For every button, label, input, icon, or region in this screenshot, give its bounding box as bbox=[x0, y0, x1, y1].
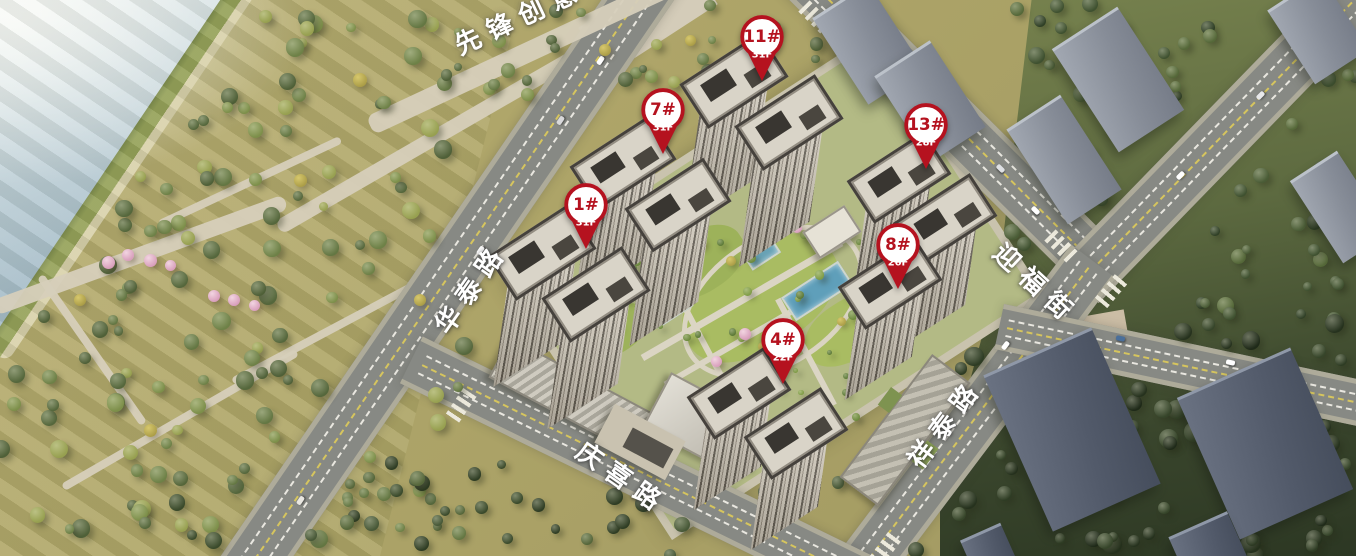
tree bbox=[1005, 462, 1018, 475]
tree bbox=[1342, 69, 1354, 81]
tree bbox=[1315, 515, 1326, 526]
tree bbox=[454, 63, 462, 71]
tree bbox=[674, 517, 690, 533]
tree bbox=[1131, 382, 1146, 397]
tree bbox=[421, 119, 439, 137]
tree bbox=[434, 140, 452, 158]
yellow-tree bbox=[353, 73, 367, 87]
tree bbox=[188, 119, 199, 130]
tree bbox=[293, 191, 303, 201]
tree bbox=[1203, 29, 1217, 43]
tree bbox=[79, 352, 91, 364]
tree bbox=[377, 487, 391, 501]
tree bbox=[152, 381, 165, 394]
tree bbox=[430, 414, 447, 431]
tree bbox=[1303, 282, 1312, 291]
tree bbox=[455, 337, 473, 355]
tree bbox=[144, 225, 157, 238]
tree bbox=[171, 215, 187, 231]
tree bbox=[280, 125, 292, 137]
tree bbox=[425, 493, 436, 504]
tree bbox=[47, 399, 58, 410]
tree bbox=[212, 312, 230, 330]
tree bbox=[272, 328, 287, 343]
tree bbox=[222, 102, 233, 113]
tree bbox=[200, 171, 215, 186]
tree bbox=[256, 407, 272, 423]
tree bbox=[618, 72, 633, 87]
tree bbox=[251, 281, 265, 295]
tree bbox=[214, 168, 232, 186]
tree bbox=[959, 491, 977, 509]
tree bbox=[169, 494, 186, 511]
yellow-tree bbox=[685, 35, 696, 46]
tree bbox=[107, 394, 125, 412]
tree bbox=[236, 371, 254, 389]
tree bbox=[364, 516, 379, 531]
tree bbox=[187, 530, 197, 540]
tree bbox=[343, 497, 353, 507]
tree bbox=[8, 365, 25, 382]
tree bbox=[521, 88, 534, 101]
yellow-tree bbox=[74, 294, 86, 306]
tree bbox=[172, 425, 183, 436]
blossom-tree bbox=[208, 290, 220, 302]
tree bbox=[1241, 269, 1251, 279]
tree bbox=[139, 517, 151, 529]
tree bbox=[173, 471, 188, 486]
tree bbox=[697, 53, 709, 65]
tree bbox=[1158, 502, 1170, 514]
tree bbox=[1154, 400, 1172, 418]
tree bbox=[92, 321, 108, 337]
tree bbox=[198, 375, 209, 386]
pin-icon: 11# 31F bbox=[739, 14, 785, 84]
blossom-tree bbox=[165, 260, 176, 271]
building-marker-8[interactable]: 8# 26F bbox=[875, 222, 921, 292]
tree bbox=[50, 440, 68, 458]
tree bbox=[1332, 278, 1344, 290]
yellow-tree bbox=[294, 174, 307, 187]
tree bbox=[410, 471, 425, 486]
tree bbox=[118, 218, 132, 232]
tree bbox=[704, 0, 715, 11]
tree bbox=[161, 438, 172, 449]
tree bbox=[249, 173, 262, 186]
tree bbox=[390, 172, 401, 183]
tree bbox=[202, 516, 219, 533]
tree bbox=[38, 310, 51, 323]
car bbox=[1115, 335, 1125, 342]
tree bbox=[248, 122, 264, 138]
tree bbox=[30, 507, 46, 523]
tree bbox=[385, 456, 398, 469]
tree bbox=[239, 463, 250, 474]
tree bbox=[908, 542, 924, 556]
tree bbox=[319, 202, 328, 211]
tree bbox=[615, 514, 630, 529]
tree bbox=[852, 413, 860, 421]
tree bbox=[326, 292, 338, 304]
tree bbox=[114, 326, 123, 335]
yellow-tree bbox=[599, 44, 611, 56]
marker-floors: 31F bbox=[653, 122, 674, 133]
tree bbox=[110, 373, 126, 389]
tree bbox=[668, 76, 680, 88]
tree bbox=[322, 165, 336, 179]
building-marker-4[interactable]: 4# 22F bbox=[760, 317, 806, 387]
marker-id: 4# bbox=[770, 329, 796, 349]
tree bbox=[550, 43, 560, 53]
tree bbox=[664, 549, 676, 556]
tree bbox=[184, 334, 200, 350]
tree bbox=[501, 63, 515, 77]
tree bbox=[364, 451, 376, 463]
marker-id: 1# bbox=[573, 194, 599, 214]
tree bbox=[198, 115, 209, 126]
tree bbox=[815, 270, 824, 279]
tree bbox=[259, 10, 272, 23]
marker-floors: 31F bbox=[576, 217, 597, 228]
tree bbox=[377, 96, 390, 109]
pin-icon: 4# 22F bbox=[760, 317, 806, 387]
marker-id: 7# bbox=[650, 99, 676, 119]
yellow-tree bbox=[144, 424, 157, 437]
tree bbox=[1178, 37, 1190, 49]
building-marker-11[interactable]: 11# 31F bbox=[739, 14, 785, 84]
tree bbox=[150, 466, 166, 482]
river-water bbox=[0, 0, 360, 370]
tree bbox=[651, 39, 662, 50]
tree bbox=[404, 47, 421, 64]
tree bbox=[1174, 323, 1191, 340]
blossom-tree bbox=[144, 254, 157, 267]
tree bbox=[340, 515, 355, 530]
tree bbox=[263, 207, 280, 224]
tree bbox=[1097, 533, 1113, 549]
masterplan-render: 先锋创意 华泰路 迎福街 祥泰路 庆喜路 1# 31F 7# 31F 11# 3… bbox=[0, 0, 1356, 556]
tree bbox=[441, 69, 453, 81]
blossom-tree bbox=[228, 294, 240, 306]
blossom-tree bbox=[739, 328, 751, 340]
tree bbox=[322, 239, 338, 255]
tree bbox=[811, 55, 820, 64]
tree bbox=[1202, 318, 1215, 331]
tree bbox=[810, 37, 823, 50]
tree bbox=[488, 79, 499, 90]
tree bbox=[511, 492, 523, 504]
tree bbox=[123, 445, 138, 460]
tree bbox=[1055, 533, 1066, 544]
tree bbox=[717, 239, 724, 246]
tree bbox=[952, 507, 966, 521]
yellow-tree bbox=[414, 294, 426, 306]
tree bbox=[1126, 395, 1141, 410]
tree bbox=[72, 519, 91, 538]
tree bbox=[1166, 66, 1178, 78]
tree bbox=[551, 524, 560, 533]
marker-id: 11# bbox=[743, 26, 780, 46]
tree bbox=[468, 467, 482, 481]
tree bbox=[645, 70, 658, 83]
blossom-tree bbox=[711, 356, 722, 367]
pin-icon: 8# 26F bbox=[875, 222, 921, 292]
tree bbox=[0, 440, 10, 458]
tree bbox=[175, 518, 189, 532]
tree bbox=[1291, 217, 1305, 231]
tree bbox=[581, 533, 593, 545]
tree bbox=[440, 506, 450, 516]
tree bbox=[964, 347, 984, 367]
yellow-tree bbox=[837, 317, 846, 326]
tree bbox=[1210, 226, 1220, 236]
tree bbox=[256, 367, 268, 379]
tree bbox=[286, 38, 304, 56]
tree bbox=[1055, 22, 1067, 34]
tree bbox=[532, 498, 546, 512]
tree bbox=[190, 398, 206, 414]
blossom-tree bbox=[102, 256, 115, 269]
tree bbox=[131, 464, 143, 476]
tree bbox=[171, 271, 189, 289]
marker-floors: 22F bbox=[773, 352, 794, 363]
tree bbox=[157, 220, 172, 235]
tree bbox=[395, 182, 407, 194]
building-marker-13[interactable]: 13# 28F bbox=[903, 102, 949, 172]
tree bbox=[428, 387, 444, 403]
building-marker-7[interactable]: 7# 31F bbox=[640, 87, 686, 157]
tree bbox=[423, 229, 436, 242]
tree bbox=[108, 315, 118, 325]
marker-floors: 28F bbox=[916, 137, 937, 148]
tree bbox=[1143, 527, 1155, 539]
tree bbox=[1223, 307, 1236, 320]
tree bbox=[41, 410, 57, 426]
building-marker-1[interactable]: 1# 31F bbox=[563, 182, 609, 252]
tree bbox=[205, 532, 222, 549]
pin-icon: 7# 31F bbox=[640, 87, 686, 157]
tree bbox=[124, 280, 137, 293]
tree bbox=[425, 17, 440, 32]
tree bbox=[683, 334, 690, 341]
tree bbox=[244, 350, 260, 366]
tree bbox=[414, 536, 429, 551]
tree bbox=[390, 484, 403, 497]
tree bbox=[115, 200, 132, 217]
tree bbox=[1286, 118, 1298, 130]
yellow-tree bbox=[726, 256, 736, 266]
tree bbox=[160, 183, 173, 196]
tree bbox=[363, 472, 375, 484]
marker-floors: 31F bbox=[752, 49, 773, 60]
tree bbox=[311, 379, 329, 397]
tree bbox=[1028, 47, 1045, 64]
tree bbox=[359, 488, 369, 498]
marker-id: 8# bbox=[885, 234, 911, 254]
blossom-tree bbox=[122, 249, 134, 261]
tree bbox=[1234, 184, 1247, 197]
tree bbox=[283, 375, 293, 385]
tree bbox=[362, 262, 374, 274]
tree bbox=[497, 460, 506, 469]
tree bbox=[7, 397, 21, 411]
tree bbox=[1010, 2, 1024, 16]
tree bbox=[502, 533, 514, 545]
pin-icon: 13# 28F bbox=[903, 102, 949, 172]
tree bbox=[278, 100, 292, 114]
tree bbox=[402, 202, 420, 220]
pin-icon: 1# 31F bbox=[563, 182, 609, 252]
tree bbox=[203, 241, 220, 258]
marker-id: 13# bbox=[907, 114, 944, 134]
tree bbox=[369, 231, 386, 248]
tree bbox=[279, 73, 296, 90]
blossom-tree bbox=[249, 300, 260, 311]
tree bbox=[263, 240, 280, 257]
tree bbox=[292, 88, 306, 102]
tree bbox=[238, 102, 251, 115]
tree bbox=[475, 501, 488, 514]
tree bbox=[1242, 331, 1260, 349]
tree bbox=[395, 523, 404, 532]
tree bbox=[1325, 314, 1344, 333]
tree bbox=[42, 370, 56, 384]
tree bbox=[181, 231, 195, 245]
tree bbox=[300, 21, 315, 36]
tree bbox=[408, 10, 427, 29]
tree bbox=[453, 382, 463, 392]
tree bbox=[695, 331, 702, 338]
marker-floors: 26F bbox=[888, 257, 909, 268]
tree bbox=[346, 23, 355, 32]
tree bbox=[355, 240, 365, 250]
tree bbox=[345, 479, 354, 488]
tree bbox=[135, 171, 146, 182]
car bbox=[1225, 359, 1235, 366]
tree bbox=[708, 36, 716, 44]
tree bbox=[65, 524, 74, 533]
tree bbox=[1246, 534, 1258, 546]
tree bbox=[455, 505, 465, 515]
tree bbox=[269, 431, 280, 442]
tree bbox=[452, 526, 466, 540]
tree bbox=[522, 75, 533, 86]
